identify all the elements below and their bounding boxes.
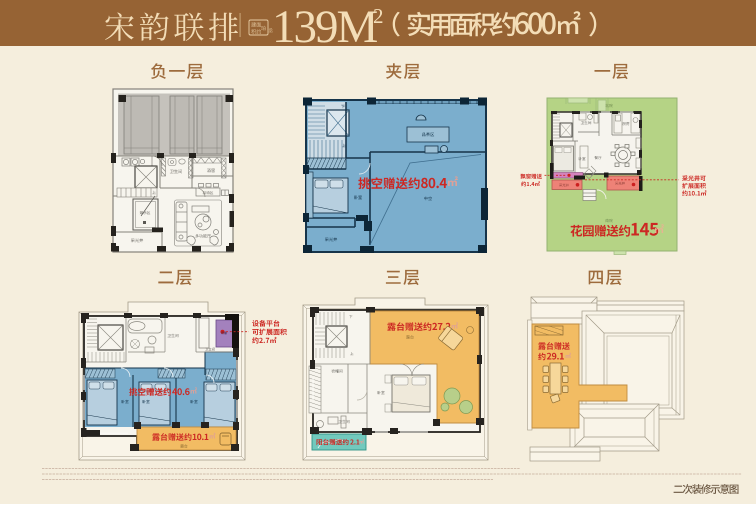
svg-text:2: 2 (373, 4, 384, 28)
svg-text:139M: 139M (272, 1, 378, 53)
